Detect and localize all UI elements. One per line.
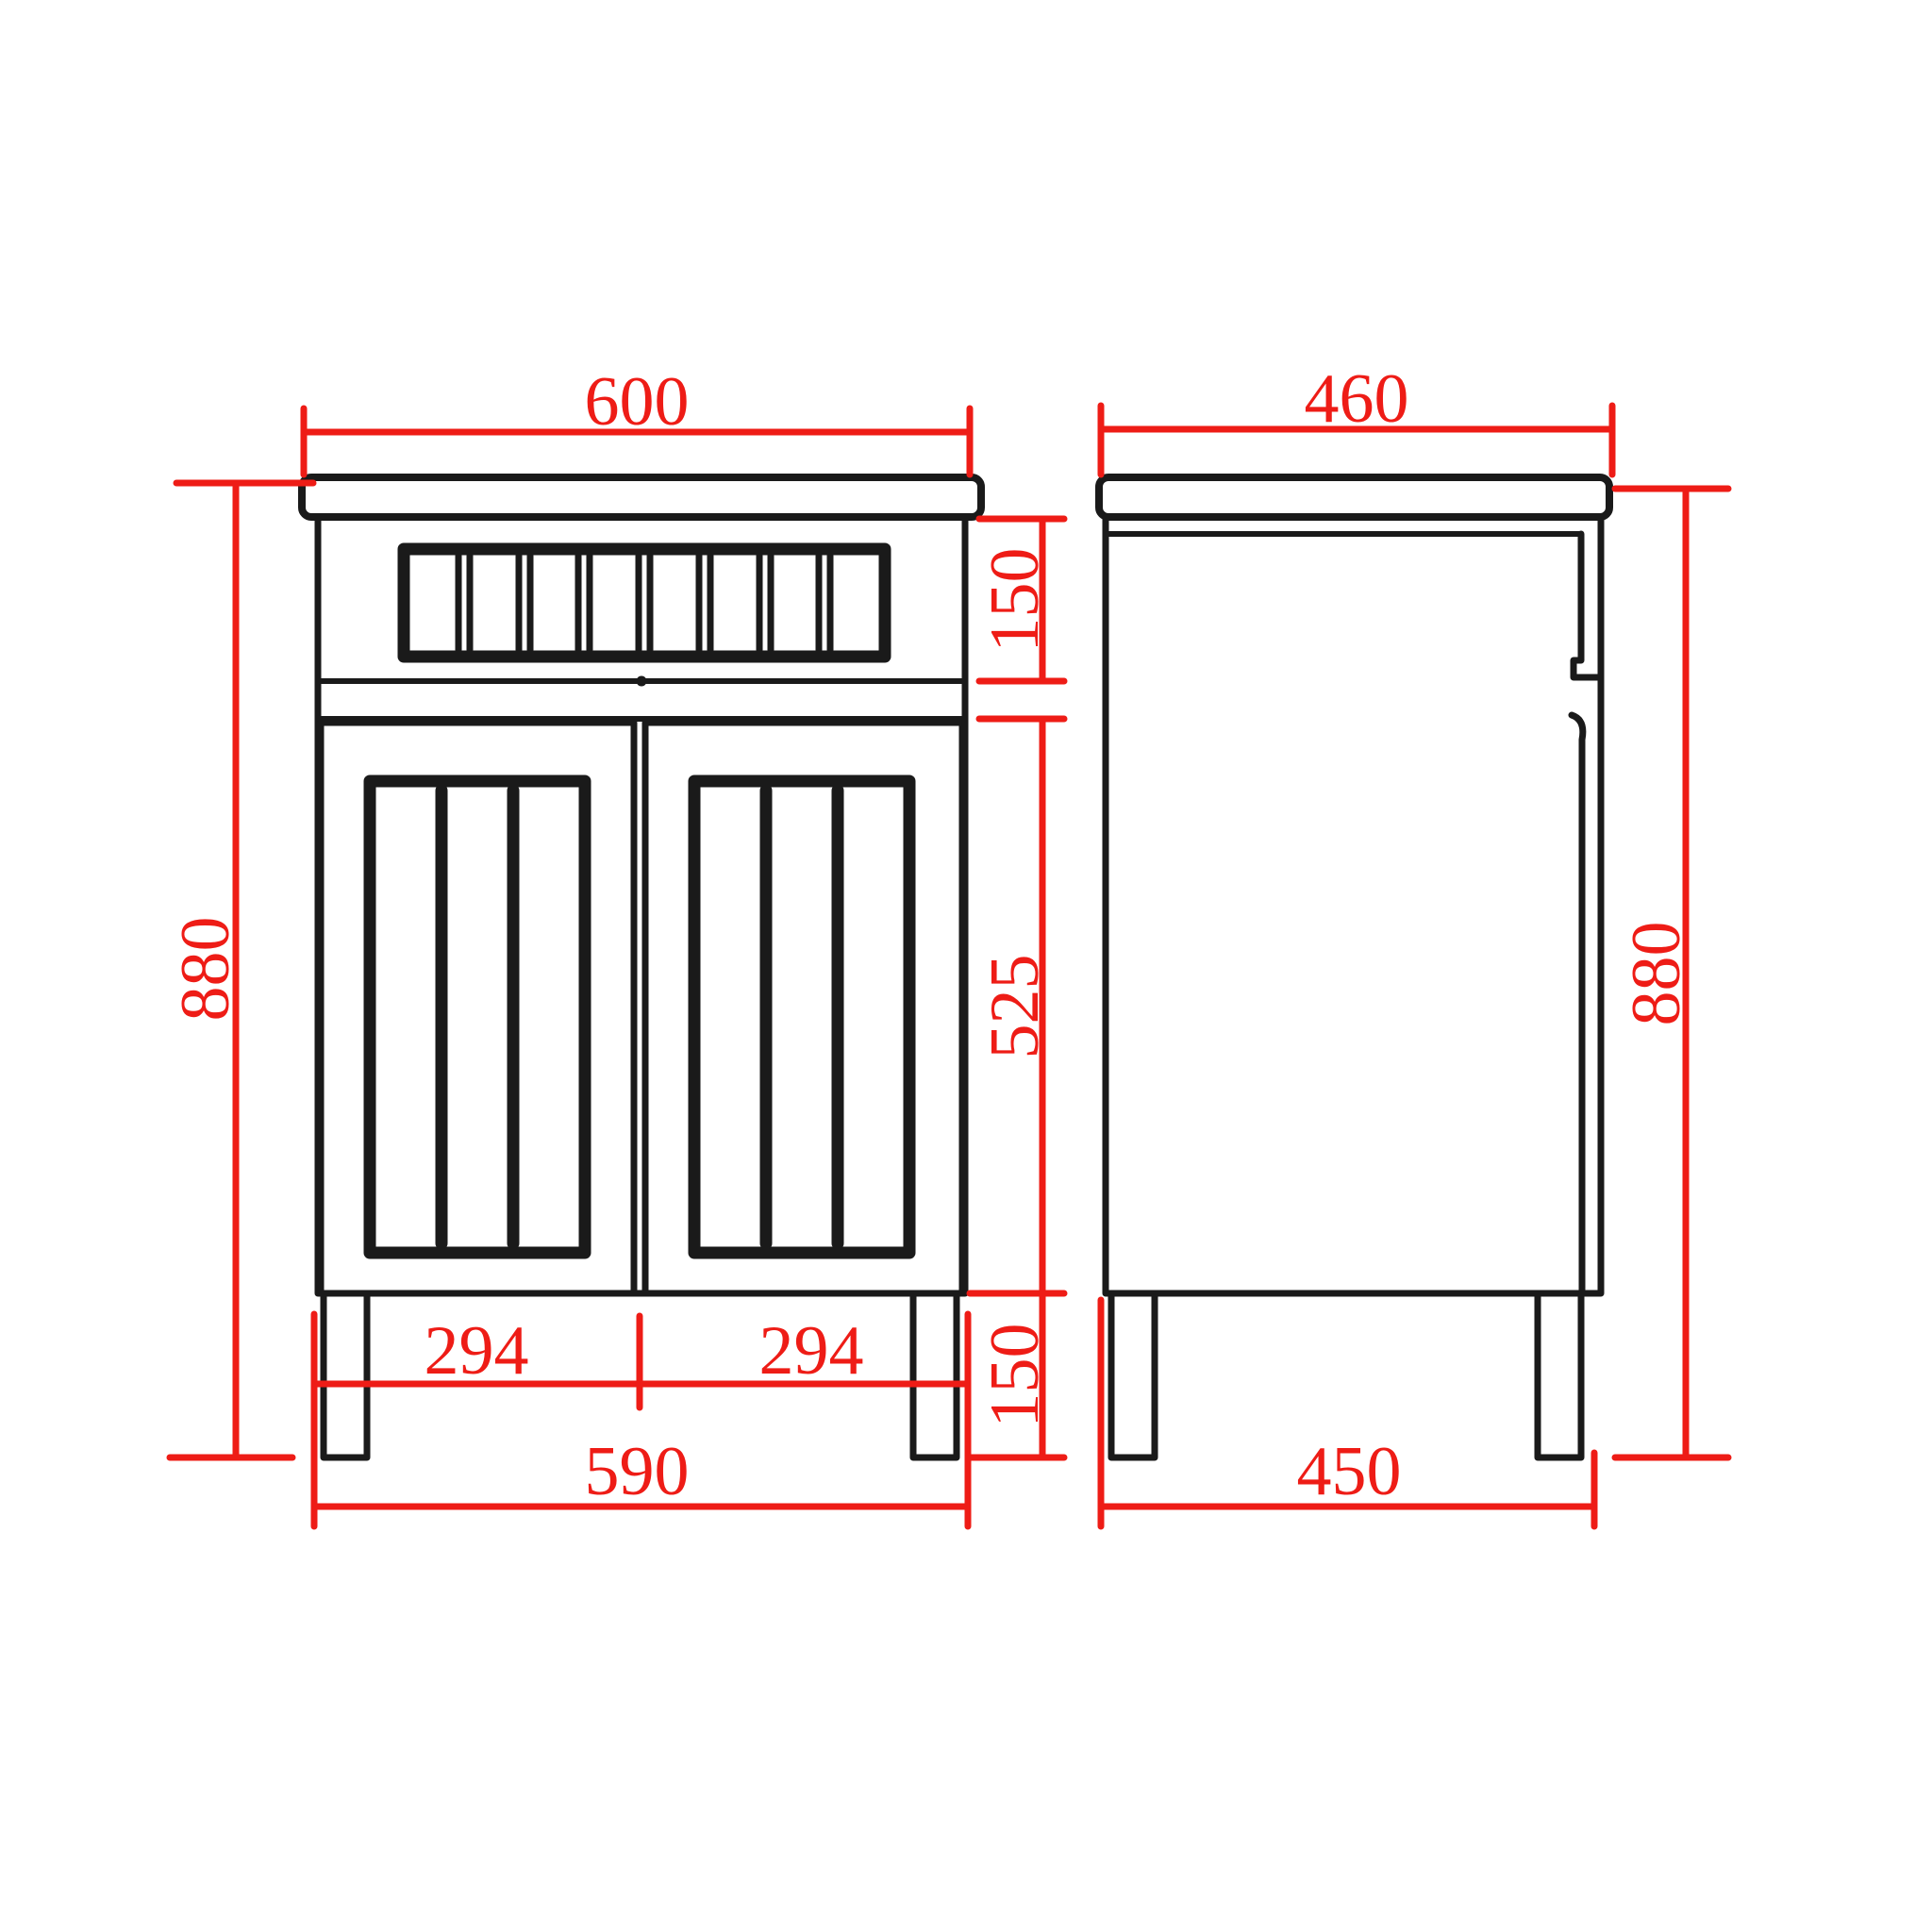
- side-cabinet-body: [1106, 517, 1601, 1293]
- front-drawer-slat-frame: [404, 549, 885, 657]
- dim-label: 880: [167, 917, 244, 1022]
- front-slat-dividers: [458, 556, 830, 650]
- front-center-mark: [637, 676, 647, 687]
- dim-label: 880: [1618, 922, 1695, 1026]
- dim-front-legs-height: 150: [970, 1293, 1064, 1457]
- front-right-leg: [913, 1293, 957, 1457]
- front-left-leg: [324, 1293, 367, 1457]
- dim-label: 294: [425, 1312, 529, 1390]
- dim-label: 150: [976, 548, 1054, 653]
- dim-label: 450: [1297, 1433, 1402, 1510]
- front-door-panel-battens: [441, 791, 838, 1243]
- dim-side-height-right: 880: [1615, 489, 1728, 1457]
- dim-front-base-width: 590: [314, 1433, 968, 1510]
- dim-label: 294: [759, 1312, 864, 1390]
- front-countertop: [302, 477, 981, 517]
- dim-label: 590: [585, 1433, 690, 1510]
- dim-front-height-left: 880: [167, 483, 313, 1457]
- front-right-door-panel: [694, 781, 909, 1253]
- dim-front-doors-height: 525: [970, 719, 1064, 1293]
- side-view: [1099, 477, 1609, 1457]
- front-view: [302, 477, 981, 1457]
- dim-front-drawer-height: 150: [976, 519, 1064, 681]
- dim-label: 460: [1305, 360, 1409, 438]
- side-drawer-front-edge: [1574, 534, 1598, 677]
- dim-label: 150: [976, 1324, 1054, 1428]
- dim-label: 600: [585, 363, 690, 441]
- dim-side-depth-top: 460: [1101, 360, 1612, 475]
- side-countertop: [1099, 477, 1609, 517]
- dimension-drawing: 600 460 880 150 525 150 294 294: [0, 0, 1932, 1932]
- side-door-front-edge: [1572, 715, 1583, 1293]
- dim-side-base-depth: 450: [1101, 1300, 1594, 1526]
- dim-front-width-top: 600: [304, 363, 970, 475]
- front-left-door-panel: [370, 781, 585, 1253]
- side-right-leg: [1538, 1293, 1581, 1457]
- side-left-leg: [1111, 1293, 1155, 1457]
- dim-label: 525: [976, 955, 1054, 1059]
- cabinet-drawing-canvas: 600 460 880 150 525 150 294 294: [0, 0, 1932, 1932]
